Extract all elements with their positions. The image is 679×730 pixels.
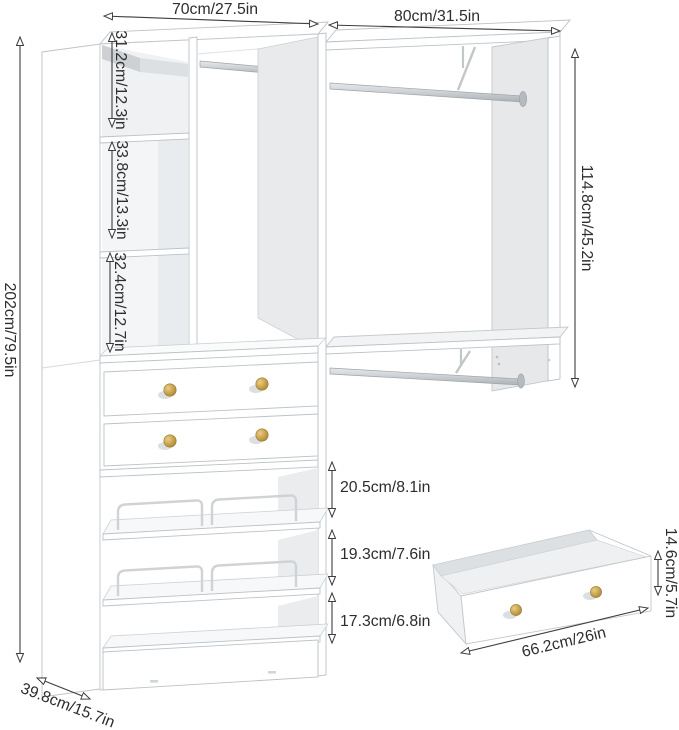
dimension-label-drawer-height: 14.6cm/5.7in: [662, 528, 679, 618]
base-foot-mark: [150, 680, 158, 683]
dimension-label-gap-middle: 19.3cm/7.6in: [340, 546, 430, 563]
drawer-knob-icon: [164, 435, 176, 447]
dimension-label-gap-bottom: 17.3cm/6.8in: [340, 613, 430, 630]
drawer-knob-icon: [256, 378, 268, 390]
base-foot-mark: [268, 671, 276, 674]
dim-cubby-middle: 33.8cm/13.3in: [112, 140, 130, 239]
dimension-label-overall-height: 202cm/79.5in: [1, 283, 18, 378]
rod-end-cap: [519, 92, 526, 107]
drawer-knob-icon: [590, 586, 601, 597]
dimension-label-right-height: 114.8cm/45.2in: [578, 165, 595, 272]
drawer-1-front: [104, 362, 318, 416]
drawer-knob-icon: [510, 604, 521, 615]
drawer-knob-icon: [256, 429, 268, 441]
cubby-2-side-shade: [158, 138, 188, 252]
dim-cubby-top: 31.2cm/12.3in: [112, 30, 129, 129]
dimension-label-left-width: 70cm/27.5in: [172, 1, 258, 18]
rod-end-cap: [518, 374, 525, 388]
dim-cubby-bottom: 32.4cm/12.7in: [110, 252, 128, 352]
dimension-label-right-width: 80cm/31.5in: [394, 8, 480, 25]
tower-right-panel-inner-face: [258, 37, 318, 350]
screw-dot: [548, 359, 551, 362]
cubby-3-side-shade: [158, 252, 188, 354]
product-dimension-diagram: 70cm/27.5in 80cm/31.5in 202cm/79.5in 31.…: [0, 0, 679, 730]
screw-dot: [496, 356, 499, 359]
left-tower-section: [42, 22, 328, 697]
dimension-label-cubby-bottom: 32.4cm/12.7in: [111, 252, 128, 351]
cubby-divider-panel: [189, 37, 197, 351]
drawer-1: [104, 362, 318, 416]
left-side-panel: [42, 44, 100, 697]
dimension-label-cubby-middle: 33.8cm/13.3in: [113, 140, 130, 239]
screw-dot: [498, 363, 501, 366]
diagram-canvas: 70cm/27.5in 80cm/31.5in 202cm/79.5in 31.…: [0, 0, 679, 730]
dimension-label-gap-top: 20.5cm/8.1in: [340, 479, 430, 496]
dimension-label-cubby-top: 31.2cm/12.3in: [112, 30, 129, 129]
drawer-knob-icon: [164, 384, 176, 396]
